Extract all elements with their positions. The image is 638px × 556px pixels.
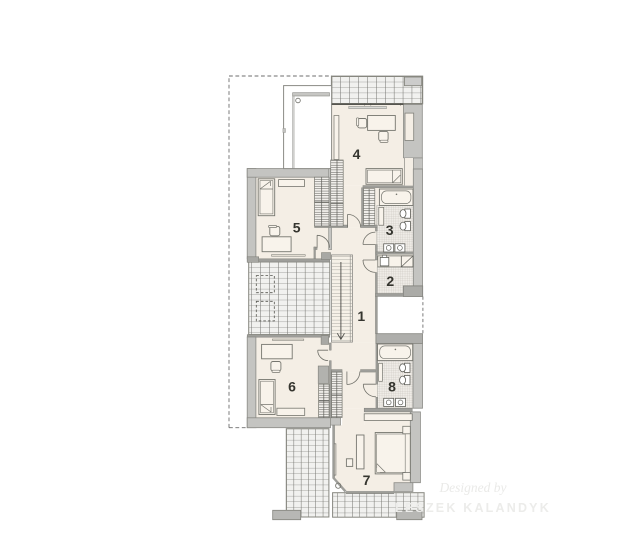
svg-text:5: 5 <box>293 219 301 235</box>
svg-text:Designed by: Designed by <box>438 480 506 495</box>
svg-text:8: 8 <box>388 379 396 395</box>
svg-text:2: 2 <box>386 273 394 289</box>
svg-text:LESZEK KALANDYK: LESZEK KALANDYK <box>395 501 551 515</box>
svg-text:7: 7 <box>363 472 371 488</box>
svg-text:1: 1 <box>357 308 365 324</box>
svg-text:3: 3 <box>386 222 394 238</box>
svg-text:4: 4 <box>353 146 361 162</box>
svg-text:6: 6 <box>288 379 296 395</box>
